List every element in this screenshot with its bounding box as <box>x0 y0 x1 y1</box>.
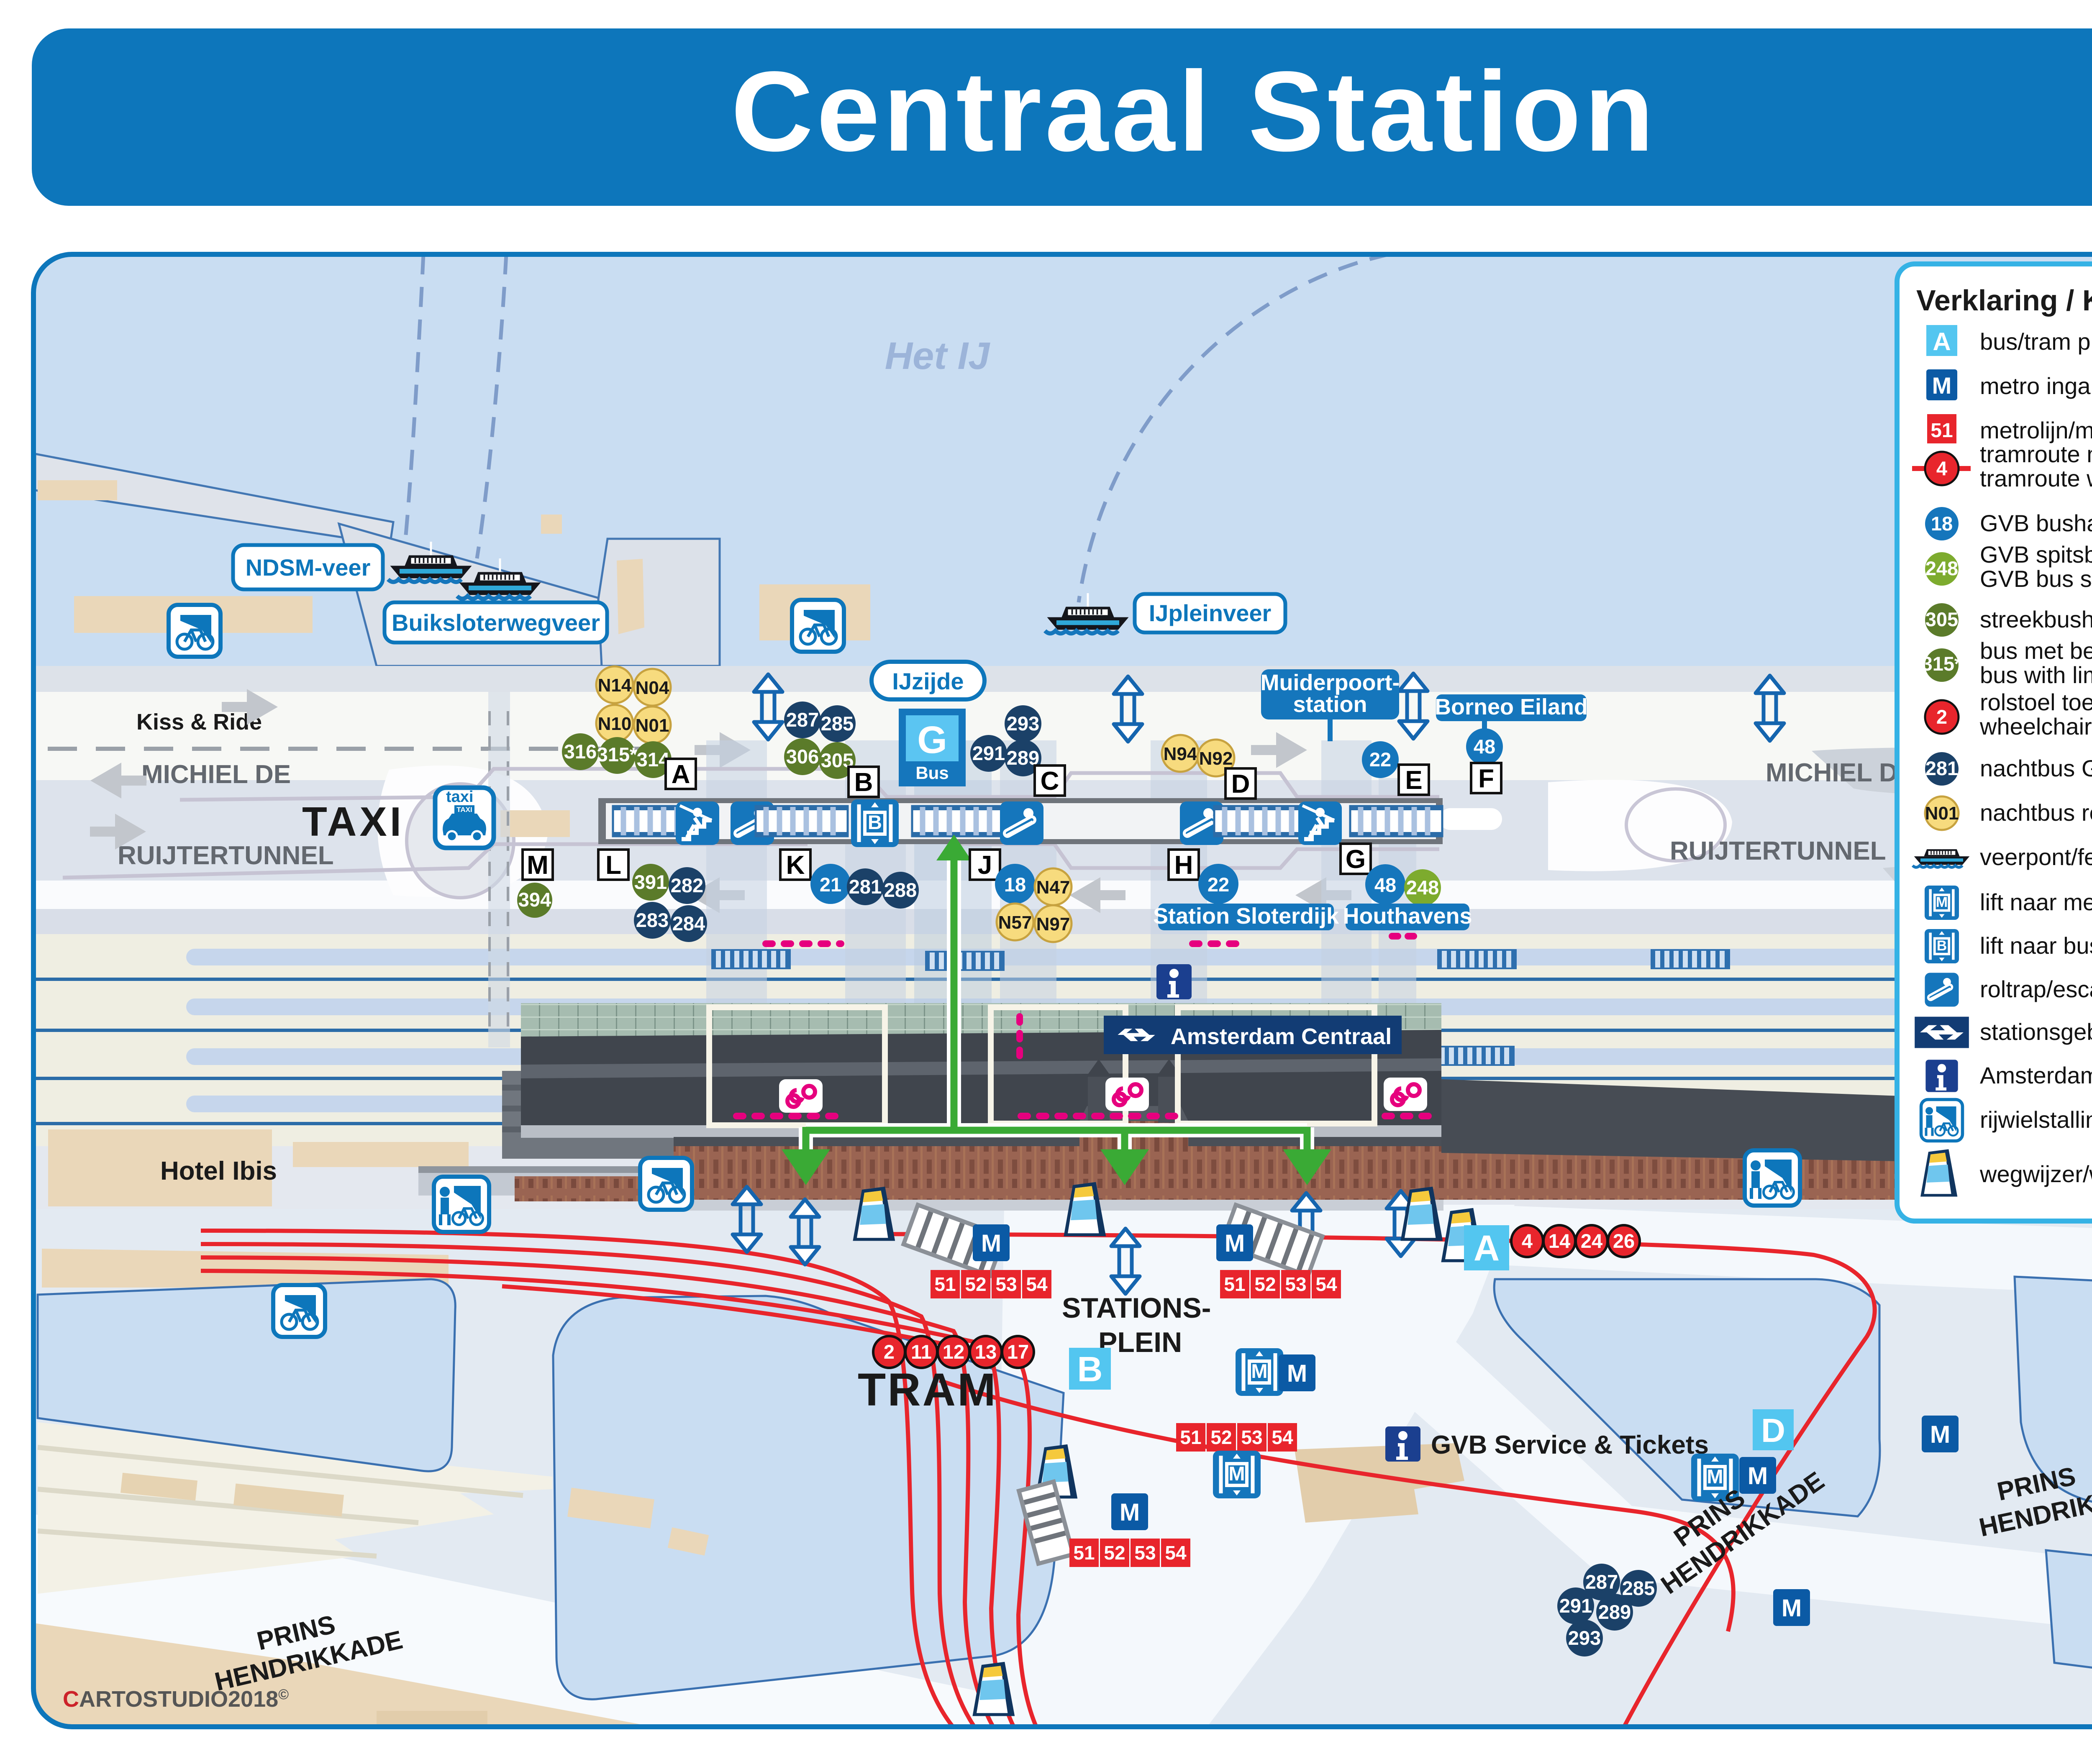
svg-text:L: L <box>605 851 621 880</box>
svg-text:H: H <box>1174 851 1193 880</box>
svg-text:D: D <box>1761 1412 1785 1449</box>
svg-text:nachtbus regio/ reg. night bus: nachtbus regio/ reg. night bus <box>1980 799 2092 826</box>
svg-text:G: G <box>1346 845 1366 874</box>
svg-text:D: D <box>1231 770 1250 799</box>
svg-text:Verklaring / Key: Verklaring / Key <box>1916 284 2092 317</box>
svg-text:17: 17 <box>1007 1341 1029 1363</box>
svg-text:391: 391 <box>634 871 667 893</box>
svg-text:Bus: Bus <box>915 763 949 783</box>
svg-text:N97: N97 <box>1036 914 1070 934</box>
svg-text:N14: N14 <box>598 675 632 696</box>
svg-text:IJpleinveer: IJpleinveer <box>1149 600 1272 626</box>
svg-text:13: 13 <box>975 1341 997 1363</box>
svg-text:N10: N10 <box>598 714 632 734</box>
svg-text:GVB Service & Tickets: GVB Service & Tickets <box>1431 1431 1709 1459</box>
svg-text:A: A <box>672 760 690 789</box>
svg-text:N04: N04 <box>636 678 669 698</box>
svg-text:Hotel Ibis: Hotel Ibis <box>160 1157 277 1185</box>
svg-text:N92: N92 <box>1199 748 1233 769</box>
svg-text:2: 2 <box>884 1341 895 1363</box>
svg-text:C: C <box>1041 767 1059 796</box>
svg-text:N57: N57 <box>998 912 1032 933</box>
svg-text:metrolijn/metro line: metrolijn/metro line <box>1980 417 2092 443</box>
svg-text:bus/tram platform: bus/tram platform <box>1980 328 2092 355</box>
svg-text:NDSM-veer: NDSM-veer <box>246 554 371 581</box>
svg-text:GVB spitsbushalte/: GVB spitsbushalte/ <box>1980 541 2092 568</box>
svg-text:248: 248 <box>1406 876 1439 899</box>
svg-text:Buiksloterwegveer: Buiksloterwegveer <box>392 609 600 636</box>
svg-text:48: 48 <box>1474 735 1495 758</box>
svg-text:18: 18 <box>1004 873 1026 896</box>
svg-text:51: 51 <box>1930 420 1953 442</box>
svg-text:Centraal Station: Centraal Station <box>731 48 1657 175</box>
svg-text:305: 305 <box>1925 608 1958 630</box>
svg-text:Houthavens: Houthavens <box>1343 904 1472 929</box>
svg-text:283: 283 <box>636 909 669 931</box>
svg-text:306: 306 <box>786 745 819 768</box>
svg-text:18: 18 <box>1931 512 1953 535</box>
svg-text:lift naar metro/elevator to me: lift naar metro/elevator to metro <box>1980 889 2092 915</box>
svg-text:48: 48 <box>1374 874 1396 896</box>
svg-text:GVB bus stop during rush hour: GVB bus stop during rush hour <box>1980 566 2092 592</box>
svg-text:281: 281 <box>849 876 882 898</box>
svg-text:MICHIEL DE: MICHIEL DE <box>1766 758 1915 787</box>
svg-text:wegwijzer/wayfinder: wegwijzer/wayfinder <box>1979 1161 2092 1187</box>
svg-text:TAXI: TAXI <box>302 799 404 845</box>
svg-text:PLEIN: PLEIN <box>1098 1326 1182 1358</box>
svg-text:rolstoel toegankelijke halte/: rolstoel toegankelijke halte/ <box>1980 689 2092 715</box>
svg-text:14: 14 <box>1548 1230 1570 1252</box>
svg-text:293: 293 <box>1568 1627 1601 1649</box>
svg-text:E: E <box>1405 766 1422 795</box>
svg-text:B: B <box>1077 1349 1103 1389</box>
svg-text:287: 287 <box>1585 1571 1618 1593</box>
svg-text:stationsgebouw/station: stationsgebouw/station <box>1980 1019 2092 1045</box>
svg-text:291: 291 <box>972 742 1005 764</box>
svg-text:TRAM: TRAM <box>858 1364 997 1416</box>
svg-text:tramroute with stop: tramroute with stop <box>1980 465 2092 492</box>
svg-text:G: G <box>917 719 947 761</box>
svg-text:11: 11 <box>911 1341 932 1363</box>
svg-text:RUIJTERTUNNEL: RUIJTERTUNNEL <box>118 841 334 870</box>
svg-text:Amsterdam Centraal: Amsterdam Centraal <box>1171 1024 1392 1049</box>
svg-text:2: 2 <box>1936 706 1947 728</box>
svg-text:bus with limited service/: bus with limited service/ <box>1980 662 2092 688</box>
svg-text:285: 285 <box>1622 1577 1655 1599</box>
svg-text:315*: 315* <box>597 743 638 766</box>
svg-text:12: 12 <box>943 1341 964 1363</box>
svg-text:veerpont/ferry: veerpont/ferry <box>1980 844 2092 870</box>
svg-text:A: A <box>1933 328 1951 356</box>
svg-text:22: 22 <box>1208 873 1229 896</box>
svg-text:metro ingang/metro entrance: metro ingang/metro entrance <box>1980 373 2092 399</box>
svg-text:Station Sloterdijk: Station Sloterdijk <box>1153 904 1339 929</box>
svg-text:Kiss & Ride: Kiss & Ride <box>136 709 262 735</box>
svg-text:tramroute met halte/: tramroute met halte/ <box>1980 441 2092 467</box>
svg-text:284: 284 <box>672 912 705 934</box>
svg-text:RUIJTERTUNNEL: RUIJTERTUNNEL <box>1670 837 1886 865</box>
svg-text:Amsterdam Tourist Office: Amsterdam Tourist Office <box>1980 1062 2092 1088</box>
svg-text:22: 22 <box>1369 748 1391 771</box>
svg-text:4: 4 <box>1936 457 1947 479</box>
svg-text:288: 288 <box>884 879 917 901</box>
svg-text:J: J <box>978 851 992 880</box>
svg-text:lift naar bus/elevator to buse: lift naar bus/elevator to buses <box>1980 932 2092 959</box>
svg-text:Het IJ: Het IJ <box>885 335 990 377</box>
svg-text:IJzijde: IJzijde <box>892 668 964 694</box>
svg-text:4: 4 <box>1522 1230 1533 1252</box>
svg-text:M: M <box>527 851 549 880</box>
svg-text:bus met beperkte dienstregelin: bus met beperkte dienstregeling/ <box>1980 637 2092 664</box>
svg-text:21: 21 <box>820 873 841 896</box>
svg-text:M: M <box>1932 372 1952 399</box>
svg-text:287: 287 <box>786 709 819 731</box>
svg-text:24: 24 <box>1581 1230 1602 1252</box>
svg-text:289: 289 <box>1598 1601 1631 1623</box>
svg-text:Muiderpoort-: Muiderpoort- <box>1261 670 1400 695</box>
svg-text:N01: N01 <box>1925 803 1959 824</box>
svg-text:293: 293 <box>1007 712 1039 735</box>
svg-text:Borneo Eiland: Borneo Eiland <box>1435 694 1588 719</box>
svg-text:CARTOSTUDIO2018©: CARTOSTUDIO2018© <box>63 1687 289 1712</box>
svg-text:F: F <box>1478 764 1494 793</box>
svg-text:STATIONS-: STATIONS- <box>1062 1292 1211 1324</box>
svg-text:282: 282 <box>671 874 703 896</box>
svg-text:316: 316 <box>564 740 597 763</box>
svg-text:rijwielstalling/bicycle shelte: rijwielstalling/bicycle shelter <box>1980 1106 2092 1133</box>
svg-text:roltrap/escalator: roltrap/escalator <box>1980 976 2092 1002</box>
svg-text:394: 394 <box>518 888 551 911</box>
svg-text:26: 26 <box>1613 1230 1635 1252</box>
svg-text:K: K <box>786 851 805 880</box>
svg-text:A: A <box>1474 1228 1500 1268</box>
svg-text:nachtbus GVB/night bus GVB: nachtbus GVB/night bus GVB <box>1980 755 2092 781</box>
svg-text:wheelchair accessible stop: wheelchair accessible stop <box>1979 713 2092 740</box>
svg-text:N94: N94 <box>1164 744 1197 764</box>
svg-text:315*: 315* <box>1922 653 1962 675</box>
svg-text:station: station <box>1293 692 1367 717</box>
svg-text:248: 248 <box>1925 557 1958 579</box>
svg-text:281: 281 <box>1925 757 1958 779</box>
svg-text:285: 285 <box>821 712 854 735</box>
svg-text:MICHIEL DE: MICHIEL DE <box>141 760 291 789</box>
svg-text:GVB bushalte/GVB bus stop: GVB bushalte/GVB bus stop <box>1980 510 2092 536</box>
svg-text:B: B <box>854 768 873 797</box>
svg-text:291: 291 <box>1559 1595 1592 1617</box>
svg-text:N47: N47 <box>1036 877 1070 898</box>
svg-text:streekbushalte/regional bus st: streekbushalte/regional bus stop <box>1980 606 2092 632</box>
svg-text:N01: N01 <box>636 715 669 736</box>
